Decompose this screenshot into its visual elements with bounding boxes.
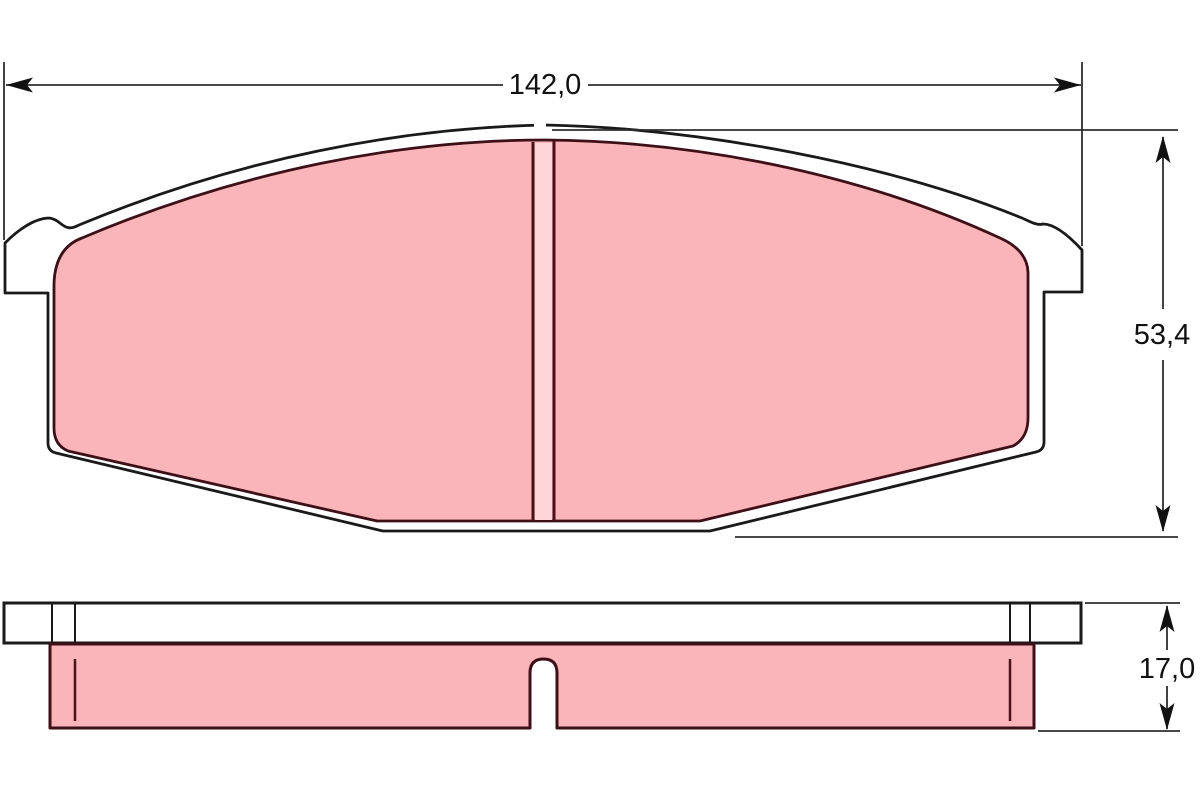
thickness-dimension-label: 17,0 [1139, 653, 1195, 685]
apex-gap [534, 118, 546, 130]
width-dimension-label: 142,0 [509, 69, 582, 101]
side-backing-plate [4, 603, 1081, 643]
brake-pad-technical-drawing: 142,0 53,4 17,0 [0, 0, 1200, 800]
center-groove-strip [535, 143, 552, 520]
height-dimension-label: 53,4 [1134, 319, 1190, 351]
drawing-svg: 142,0 53,4 17,0 [0, 0, 1200, 800]
